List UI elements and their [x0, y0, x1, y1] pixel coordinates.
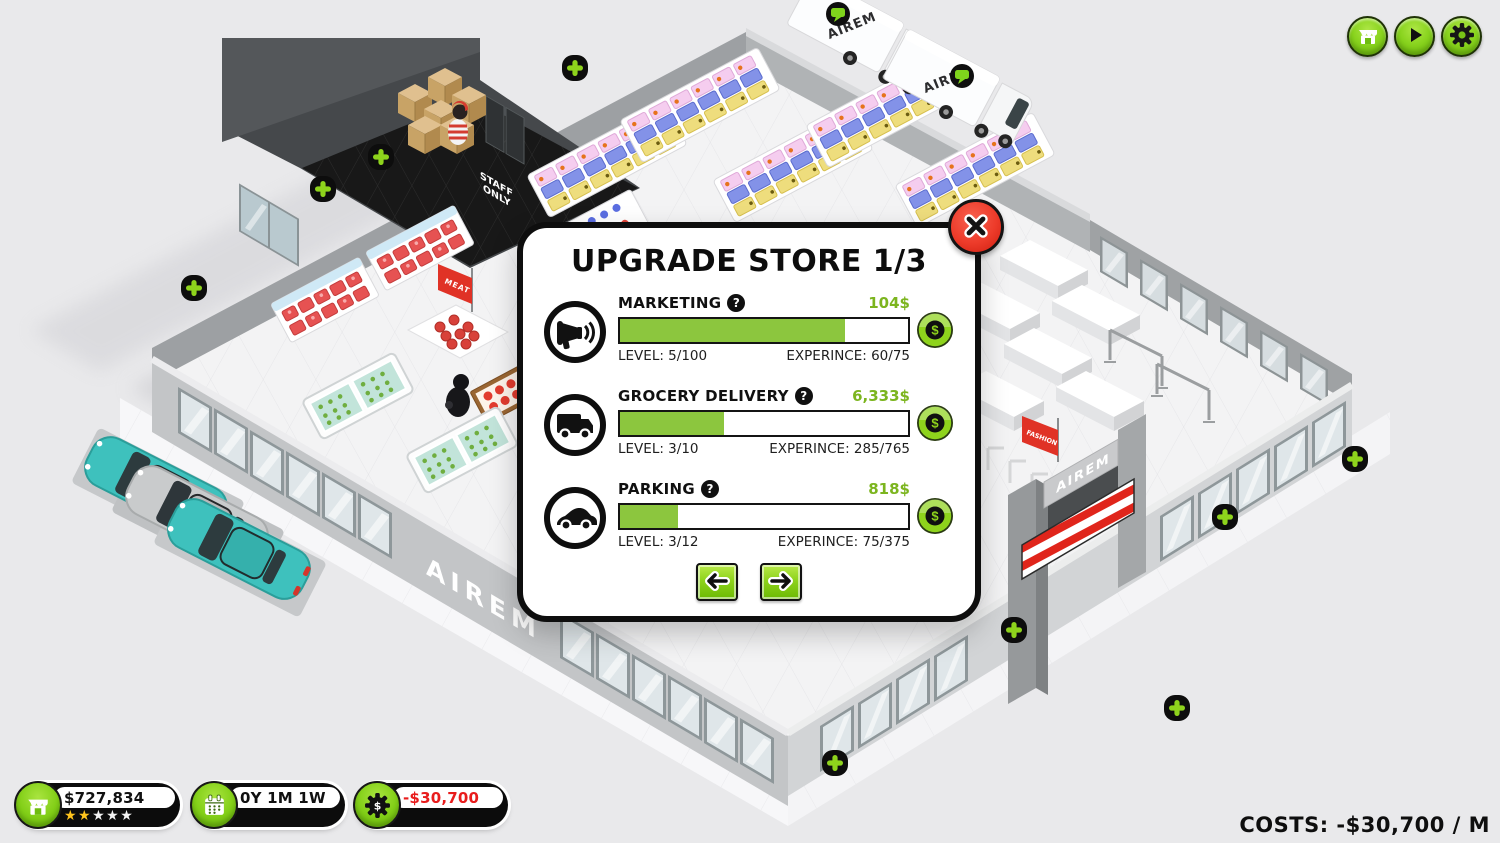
svg-text:$: $ — [931, 509, 939, 524]
expand-plus-button[interactable] — [1342, 446, 1368, 472]
close-button[interactable] — [948, 199, 1004, 255]
upgrade-name: MARKETING — [618, 294, 721, 312]
expand-plus-button[interactable] — [310, 176, 336, 202]
progress-fill — [620, 319, 845, 342]
costs-gear-icon: $ — [353, 781, 401, 829]
truck-chat-bubble-icon[interactable] — [950, 64, 974, 88]
level-label: LEVEL: 5/100 — [618, 348, 707, 364]
upgrade-store-modal: UPGRADE STORE 1/3 MARKETING ? 104$ LEVEL… — [517, 222, 981, 622]
arrow-left-icon — [704, 571, 730, 594]
buy-upgrade-button[interactable]: $ — [916, 404, 954, 442]
shop-button[interactable] — [1347, 16, 1388, 57]
game-stage: AIREM — [0, 0, 1500, 843]
monthly-costs-label: COSTS: -$30,700 / M — [1239, 813, 1490, 837]
level-label: LEVEL: 3/10 — [618, 441, 699, 457]
expand-plus-button[interactable] — [181, 275, 207, 301]
prev-page-button[interactable] — [696, 563, 738, 601]
progress-fill — [620, 412, 724, 435]
modal-title: UPGRADE STORE 1/3 — [523, 244, 975, 279]
date-value: 0Y 1M 1W — [240, 789, 326, 807]
upgrade-name: GROCERY DELIVERY — [618, 387, 789, 405]
delivery-truck-icon — [544, 394, 606, 456]
svg-text:$: $ — [373, 799, 381, 812]
help-icon[interactable]: ? — [701, 480, 719, 498]
experience-label: EXPERINCE: 75/375 — [778, 534, 910, 550]
expand-plus-button[interactable] — [1164, 695, 1190, 721]
upgrade-cost: 6,333$ — [852, 387, 910, 405]
svg-text:$: $ — [931, 416, 939, 431]
buy-upgrade-button[interactable]: $ — [916, 497, 954, 535]
buy-upgrade-button[interactable]: $ — [916, 311, 954, 349]
expenses-value: -$30,700 — [403, 789, 479, 807]
progress-fill — [620, 505, 678, 528]
expenses-pill[interactable]: -$30,700 $ — [356, 783, 508, 827]
money-pill[interactable]: $727,834 ★★★★★ — [17, 783, 180, 827]
next-page-button[interactable] — [760, 563, 802, 601]
truck-chat-bubble-icon[interactable] — [826, 2, 850, 26]
settings-button[interactable] — [1441, 16, 1482, 57]
progress-bar — [618, 317, 910, 344]
arrow-right-icon — [768, 571, 794, 594]
store-rating: ★★★★★ — [64, 807, 134, 825]
progress-bar — [618, 503, 910, 530]
upgrade-cost: 818$ — [868, 480, 910, 498]
level-label: LEVEL: 3/12 — [618, 534, 699, 550]
upgrade-name: PARKING — [618, 480, 695, 498]
help-icon[interactable]: ? — [727, 294, 745, 312]
experience-label: EXPERINCE: 60/75 — [786, 348, 910, 364]
help-icon[interactable]: ? — [795, 387, 813, 405]
upgrade-cost: 104$ — [868, 294, 910, 312]
expand-plus-button[interactable] — [368, 144, 394, 170]
experience-label: EXPERINCE: 285/765 — [769, 441, 910, 457]
gear-icon — [1449, 22, 1475, 52]
expand-plus-button[interactable] — [1001, 617, 1027, 643]
money-value: $727,834 — [64, 789, 144, 807]
play-icon — [1405, 25, 1425, 49]
date-pill[interactable]: 0Y 1M 1W — [193, 783, 345, 827]
close-icon — [961, 211, 991, 244]
svg-text:$: $ — [931, 323, 939, 338]
progress-bar — [618, 410, 910, 437]
calendar-icon — [190, 781, 238, 829]
store-icon — [14, 781, 62, 829]
car-icon — [544, 487, 606, 549]
expand-plus-button[interactable] — [562, 55, 588, 81]
shop-icon — [1356, 23, 1380, 51]
expand-plus-button[interactable] — [1212, 504, 1238, 530]
expand-plus-button[interactable] — [822, 750, 848, 776]
play-button[interactable] — [1394, 16, 1435, 57]
megaphone-icon — [544, 301, 606, 363]
